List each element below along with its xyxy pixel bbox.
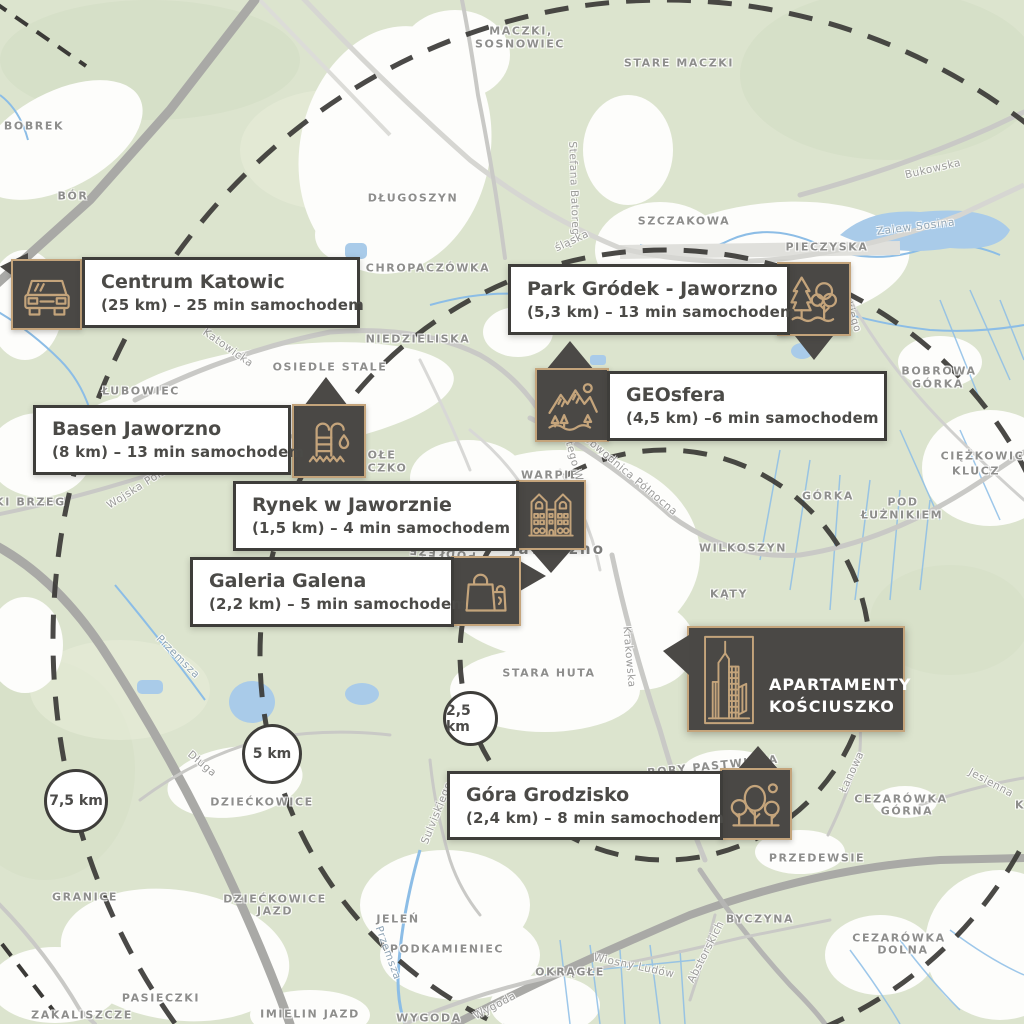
callout-title: GEOsfera — [626, 383, 868, 409]
location-map: MACZKI,SOSNOWIECSTARE MACZKIDŁUGOSZYNSZC… — [0, 0, 1024, 1024]
map-place-label: PASIECZKI — [122, 992, 200, 1005]
map-place-label: DOLNA — [877, 944, 928, 957]
map-place-label: OSIEDLE STALE — [273, 361, 388, 374]
map-place-label: K — [1015, 799, 1024, 812]
map-place-label: BÓR — [57, 190, 88, 203]
map-place-label: KĄTY — [710, 588, 748, 601]
apartment-building-logo — [701, 634, 757, 730]
shopping-bags-icon — [451, 556, 521, 626]
map-street-label: Długa — [185, 749, 219, 780]
callout-galeria-galena: Galeria Galena (2,2 km) – 5 min samochod… — [190, 557, 454, 627]
callout-title: Rynek w Jaworznie — [252, 493, 500, 519]
map-place-label: PODKAMIENIEC — [390, 943, 504, 956]
map-place-label: CIĘŻKOWICE — [941, 450, 1024, 463]
callout-title: Centrum Katowic — [101, 270, 341, 296]
callout-title: Galeria Galena — [209, 569, 435, 595]
callout-park-grodek: Park Gródek - Jaworzno (5,3 km) – 13 min… — [508, 264, 790, 335]
callout-subtitle: (8 km) – 13 min samochodem — [52, 443, 272, 463]
map-street-label: Bukowska — [904, 157, 962, 182]
map-place-label: ŁUŻNIKIEM — [861, 509, 943, 522]
map-place-label: STARE MACZKI — [624, 57, 734, 70]
callout-title: Park Gródek - Jaworzno — [527, 277, 771, 303]
map-place-label: SOSNOWIEC — [475, 38, 565, 51]
callout-subtitle: (5,3 km) – 13 min samochodem — [527, 303, 771, 323]
map-place-label: GRANICE — [52, 891, 118, 904]
callout-rynek-jaworzno: Rynek w Jaworznie (1,5 km) – 4 min samoc… — [233, 481, 519, 551]
townhouses-icon — [516, 480, 586, 550]
map-place-label: STARA HUTA — [502, 667, 595, 680]
callout-basen-jaworzno: Basen Jaworzno (8 km) – 13 min samochode… — [33, 405, 291, 475]
map-place-label: GÓRKA — [912, 378, 964, 391]
map-place-label: OKI BRZEG — [0, 496, 66, 509]
map-place-label: WYGODA — [396, 1012, 462, 1024]
distance-badge-label: 2,5 km — [446, 703, 495, 735]
map-place-label: BOBROWA — [901, 365, 976, 378]
map-street-label: Stefana Batorego — [566, 141, 582, 243]
map-place-label: KLUCZ — [952, 465, 1000, 478]
callout-subtitle: (1,5 km) – 4 min samochodem — [252, 519, 500, 539]
map-place-label: GÓRNA — [881, 805, 934, 818]
map-street-label: Krakowska — [620, 626, 637, 688]
map-street-label: Wygoda — [472, 990, 518, 1022]
map-place-label: SZCZAKOWA — [638, 215, 730, 228]
map-place-label: WILKOSZYN — [699, 542, 787, 555]
map-place-label: IMIELIN JAZD — [260, 1008, 360, 1021]
map-place-label: DZIEĆKOWICE — [210, 796, 314, 809]
map-place-label: MACZKI, — [489, 25, 553, 38]
forest-trees-icon — [720, 768, 792, 840]
development-panel: APARTAMENTY KOŚCIUSZKO — [687, 626, 905, 732]
callout-subtitle: (2,2 km) – 5 min samochodem — [209, 595, 435, 615]
callout-title: Basen Jaworzno — [52, 417, 272, 443]
development-name-line1: APARTAMENTY — [769, 674, 911, 696]
map-street-label: Łanowa — [837, 750, 866, 795]
map-place-label: OŁE — [368, 449, 397, 462]
map-place-label: NIEDZIELISKA — [366, 333, 471, 346]
callout-apartamenty-kosciuszko: APARTAMENTY KOŚCIUSZKO — [687, 626, 905, 732]
distance-badge-5km: 5 km — [242, 724, 302, 784]
development-name-line2: KOŚCIUSZKO — [769, 696, 911, 718]
map-place-label: POD — [887, 496, 918, 509]
distance-badge-7-5km: 7,5 km — [44, 769, 108, 833]
map-place-label: ZAKALISZCZE — [31, 1009, 133, 1022]
map-place-label: BYCZYNA — [726, 913, 794, 926]
map-place-label: CHROPACZÓWKA — [366, 262, 490, 275]
callout-title: Góra Grodzisko — [466, 783, 704, 809]
map-place-label: DŁUGOSZYN — [368, 192, 459, 205]
callout-gora-grodzisko: Góra Grodzisko (2,4 km) – 8 min samochod… — [447, 771, 723, 840]
callout-subtitle: (2,4 km) – 8 min samochodem — [466, 809, 704, 829]
map-street-label: Jesienna — [967, 766, 1016, 800]
map-water-label: Zalew Sosina — [876, 216, 956, 238]
map-place-label: BOBREK — [4, 120, 64, 133]
map-place-label: ŁUBOWIEC — [102, 385, 180, 398]
map-place-label: PIECZYSKA — [785, 241, 868, 254]
car-icon — [11, 259, 82, 330]
pool-ladder-icon — [292, 404, 366, 478]
distance-badge-label: 5 km — [253, 746, 292, 762]
map-place-label: JAZD — [257, 905, 293, 918]
distance-badge-label: 7,5 km — [49, 793, 103, 809]
map-place-label: GÓRKA — [802, 490, 854, 503]
callout-subtitle: (25 km) – 25 min samochodem — [101, 296, 341, 316]
map-place-label: OKRĄGŁE — [535, 966, 605, 979]
map-street-label: Obwodnica Północna — [580, 432, 680, 518]
development-name: APARTAMENTY KOŚCIUSZKO — [769, 674, 911, 717]
map-place-label: PRZEDEWSIE — [769, 852, 865, 865]
map-street-label: Katowicka — [201, 326, 256, 369]
callout-centrum-katowic: Centrum Katowic (25 km) – 25 min samocho… — [82, 257, 360, 328]
mountains-icon — [535, 368, 609, 442]
callout-subtitle: (4,5 km) –6 min samochodem — [626, 409, 868, 429]
callout-geosfera: GEOsfera (4,5 km) –6 min samochodem — [607, 371, 887, 441]
map-water-label: Przemsza — [154, 633, 202, 681]
map-street-label: Abstorskich — [685, 919, 726, 985]
distance-badge-2-5km: 2,5 km — [443, 691, 498, 746]
